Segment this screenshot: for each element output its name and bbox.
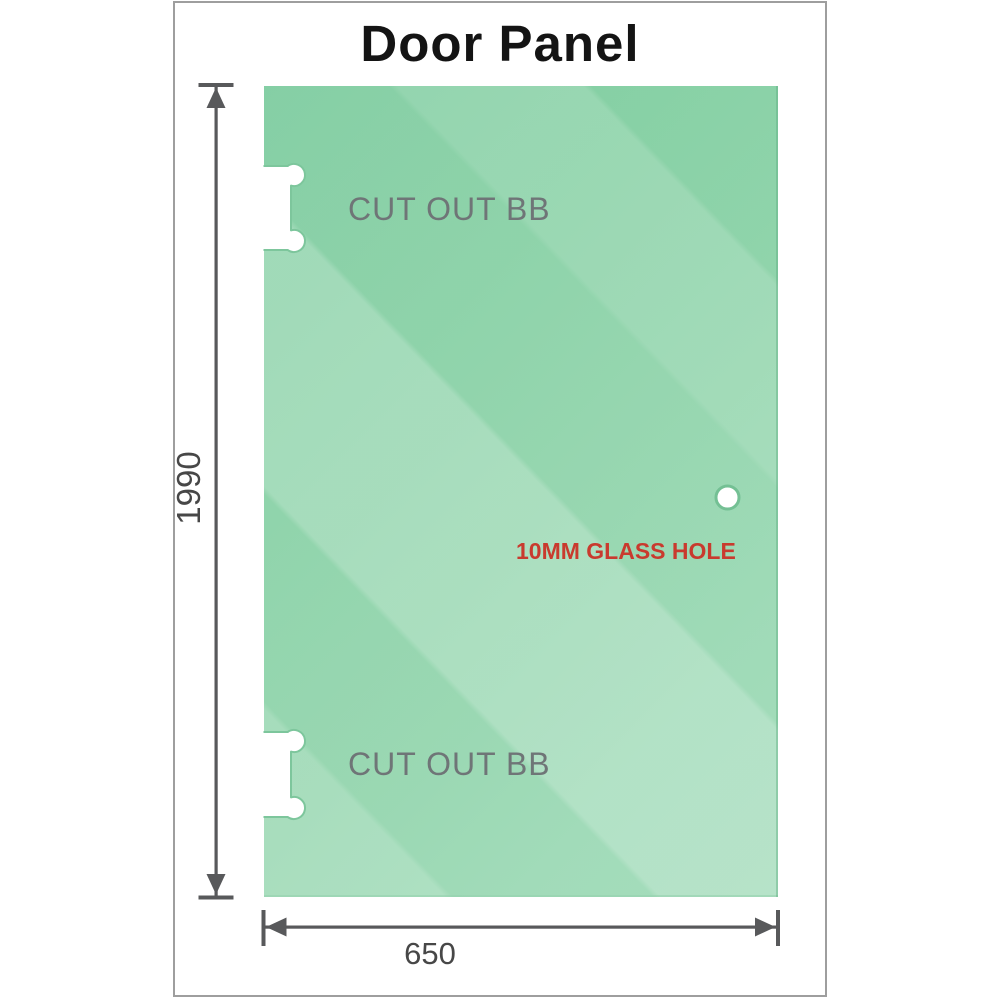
hinge-cutout-bottom-icon (262, 730, 305, 819)
glass-hole-label: 10MM GLASS HOLE (516, 540, 736, 563)
glass-hole-icon (716, 486, 739, 509)
arrowhead-up-icon (207, 88, 226, 109)
cutout-edge-mask-bottom (239, 726, 264, 823)
hinge-cutouts (239, 160, 305, 823)
cutout-bottom-label: CUT OUT BB (348, 748, 551, 780)
height-dimension-label: 1990 (169, 428, 209, 548)
door-panel-diagram: Door Panel 1990 650 CUT (0, 0, 1000, 1000)
hinge-cutout-top-icon (262, 164, 305, 252)
diagram-overlay (0, 0, 1000, 1000)
arrowhead-down-icon (207, 874, 226, 895)
cutout-edge-mask-top (239, 160, 264, 256)
width-dimension-arrow (262, 910, 781, 946)
arrowhead-right-icon (755, 918, 776, 937)
arrowhead-left-icon (266, 918, 287, 937)
cutout-top-label: CUT OUT BB (348, 193, 551, 225)
width-dimension-label: 650 (385, 938, 475, 969)
